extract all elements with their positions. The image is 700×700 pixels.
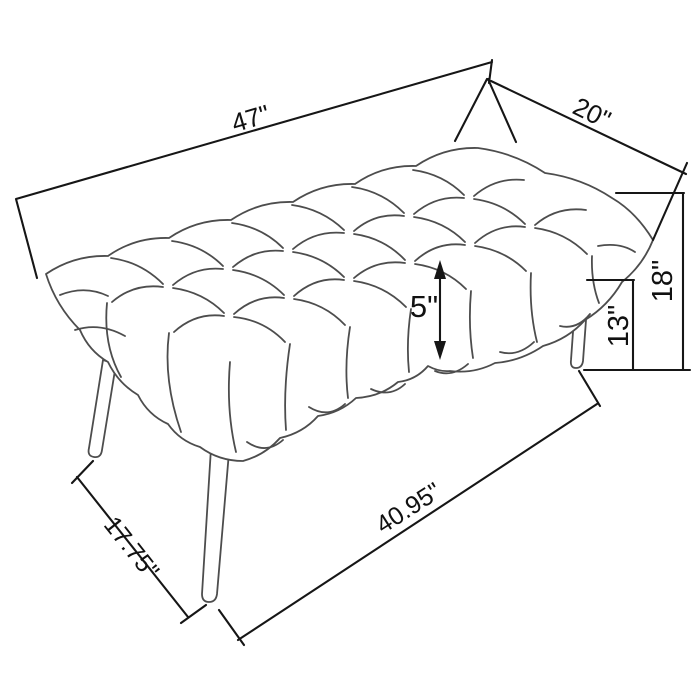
overall-length-label: 47"	[228, 99, 273, 139]
leg-span-depth-label: 17.75"	[98, 511, 164, 584]
bench-dimension-diagram: 47" 20" 18" 13" 5" 17.75" 40.95"	[0, 0, 700, 700]
diagram-svg: 47" 20" 18" 13" 5" 17.75" 40.95"	[0, 0, 700, 700]
cushion-thickness-label: 5"	[410, 289, 438, 324]
overall-depth-label: 20"	[568, 91, 616, 135]
overall-height-label: 18"	[647, 260, 679, 303]
cushion-outline	[46, 148, 653, 461]
back-left-leg	[89, 360, 116, 457]
front-left-leg	[202, 448, 229, 602]
floor-to-seat-bottom-label: 13"	[603, 305, 635, 348]
leg-span-length-label: 40.95"	[371, 477, 446, 539]
tufted-cushion	[46, 148, 653, 461]
